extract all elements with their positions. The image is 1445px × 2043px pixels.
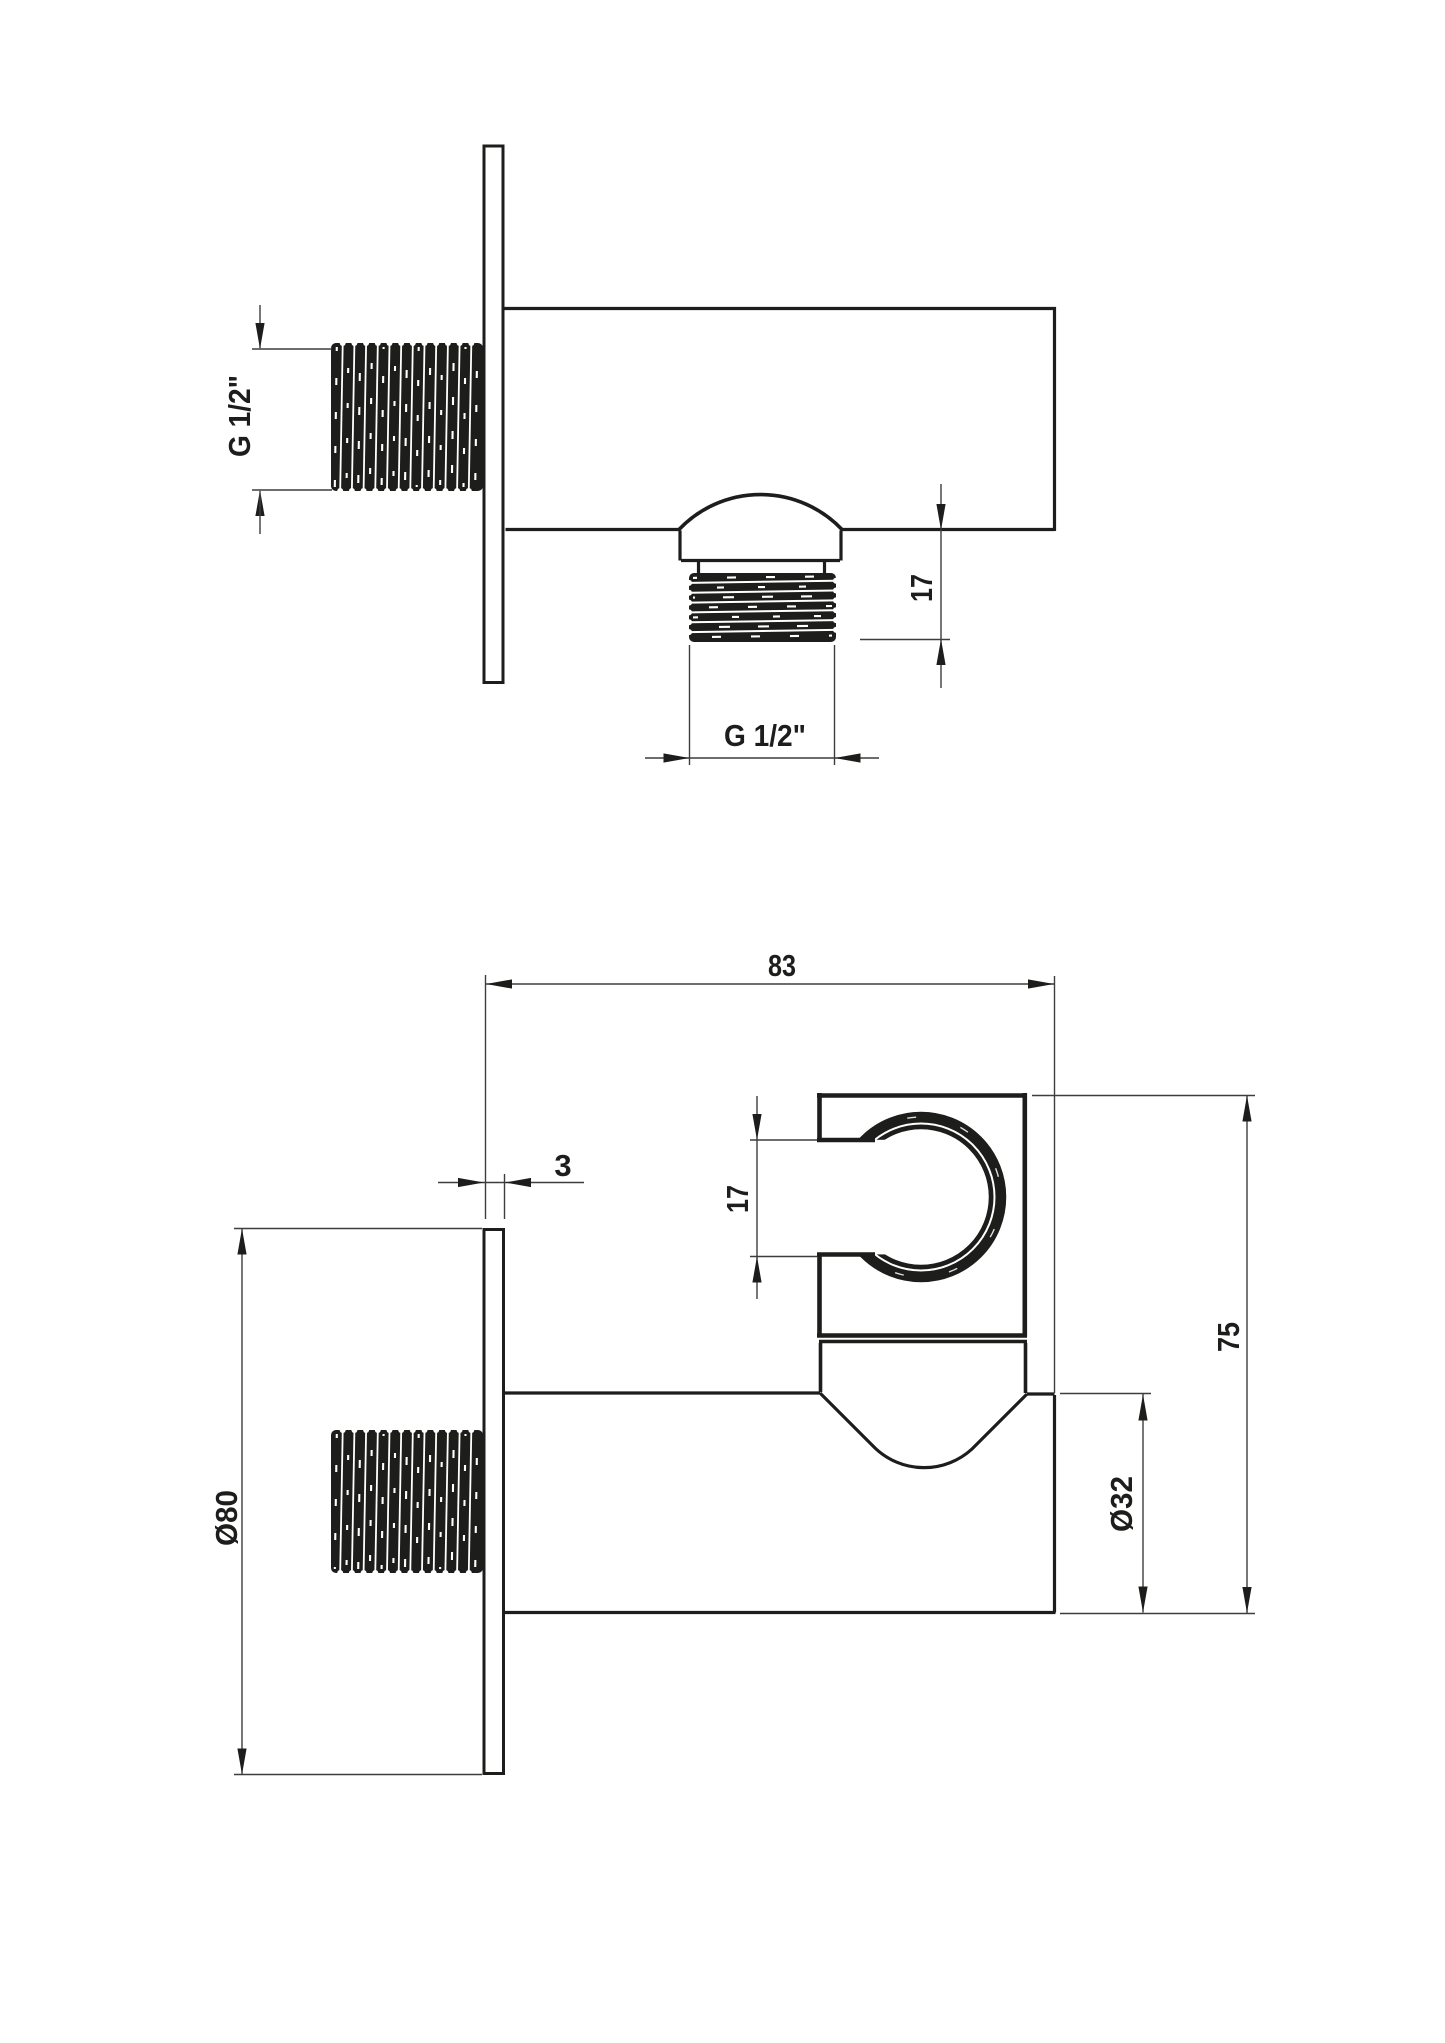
svg-text:G 1/2": G 1/2" (724, 718, 806, 753)
svg-text:Ø80: Ø80 (209, 1490, 244, 1546)
svg-text:3: 3 (554, 1148, 571, 1183)
svg-text:83: 83 (768, 948, 796, 983)
svg-text:Ø32: Ø32 (1104, 1476, 1139, 1532)
svg-text:17: 17 (904, 574, 939, 602)
svg-text:17: 17 (720, 1185, 755, 1213)
svg-text:G 1/2": G 1/2" (222, 375, 257, 457)
svg-text:75: 75 (1211, 1322, 1246, 1352)
